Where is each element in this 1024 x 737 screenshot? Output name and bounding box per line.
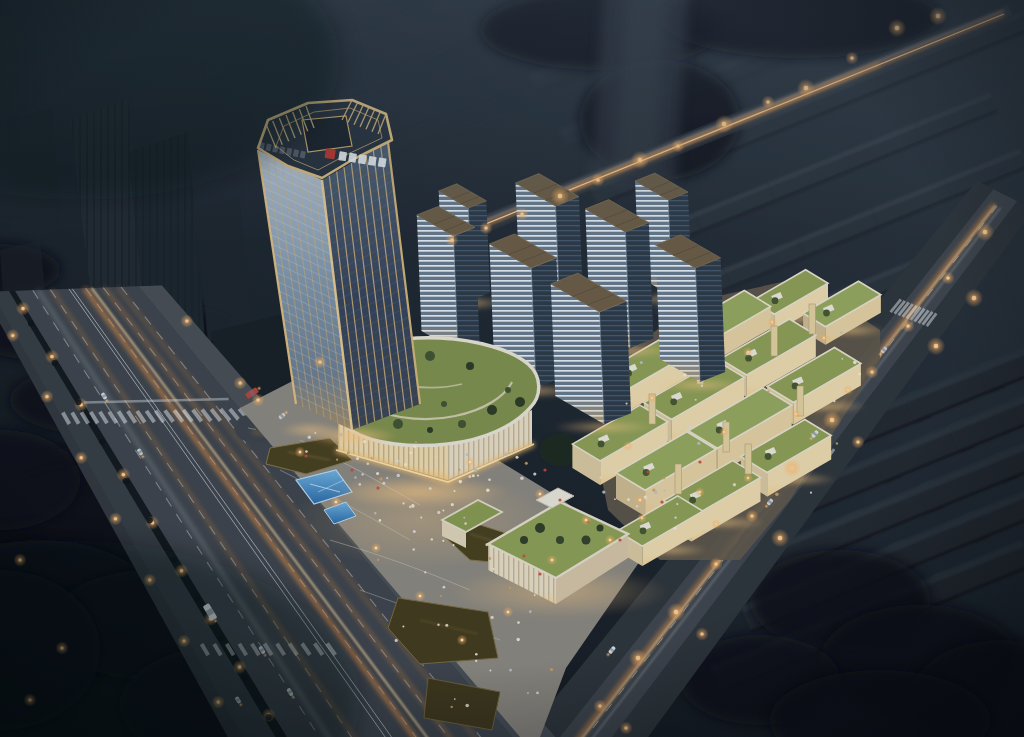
architectural-scene-canvas <box>0 0 1024 737</box>
rendering-image <box>0 0 1024 737</box>
atmosphere-vignette <box>0 0 1024 737</box>
